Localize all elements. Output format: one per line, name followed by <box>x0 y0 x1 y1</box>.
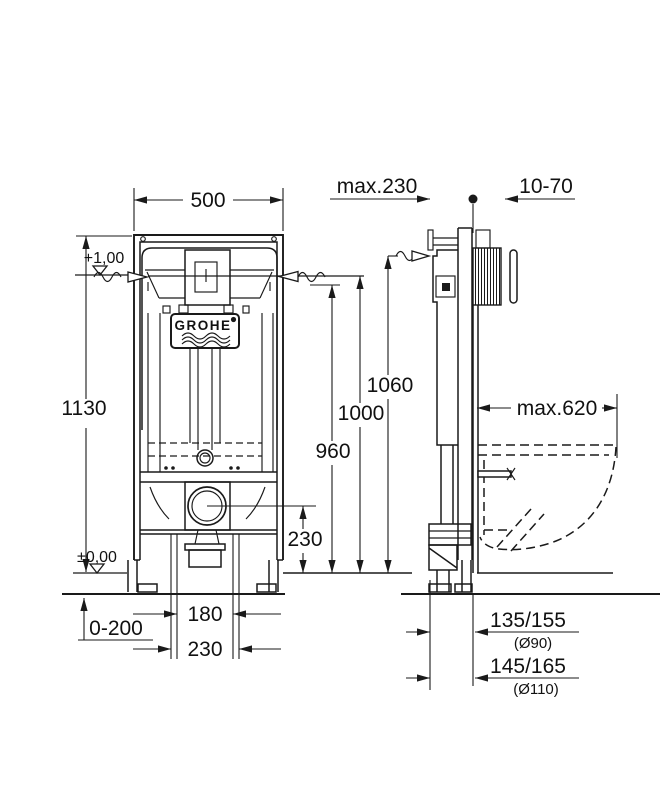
level-mark-icon <box>90 564 104 573</box>
dim-pipe-spacing-label: 230 <box>187 638 222 661</box>
frame-screw-icon <box>272 237 277 242</box>
wall-bracket <box>428 230 433 250</box>
dim-fixing-spacing-label: 180 <box>187 603 222 626</box>
dim-1060-label: 1060 <box>367 374 414 397</box>
dim-plate-adjust-label: 10-70 <box>519 175 573 198</box>
plate-connection-arrow-icon <box>396 251 429 261</box>
fixing-stud <box>478 471 511 477</box>
actuation-plate <box>510 250 517 303</box>
level-top-label: +1,00 <box>84 250 125 267</box>
cistern: GROHE <box>142 248 277 567</box>
wc-bowl-outline <box>478 445 616 551</box>
grohe-logo: GROHE <box>171 314 239 348</box>
wall-reference-dot-icon <box>469 195 478 204</box>
dim-drain-110-label: 145/165 <box>490 655 566 678</box>
dim-outlet-height-label: 230 <box>287 528 322 551</box>
adjustable-feet <box>128 560 278 592</box>
flush-bend-connector <box>197 450 213 466</box>
dim-width-label: 500 <box>190 189 225 212</box>
brand-text: GROHE <box>174 318 231 333</box>
mounting-frame <box>128 235 283 592</box>
registered-mark-icon <box>231 317 236 322</box>
installation-drawing: GROHE <box>0 0 667 800</box>
dim-drain-110-dia-label: (Ø110) <box>513 681 559 698</box>
flush-valve-unit <box>185 250 230 305</box>
dim-bowl-depth-label: max.620 <box>517 397 598 420</box>
dimensions: 500 1130 +1,00 ±0,00 230 9 <box>61 175 617 698</box>
inspection-shaft <box>473 248 501 305</box>
dim-drain-90-dia-label: (Ø90) <box>514 635 552 652</box>
dim-floor-buildup-label: 0-200 <box>89 617 143 640</box>
front-view: GROHE <box>128 235 283 659</box>
dim-drain-90-label: 135/155 <box>490 609 566 632</box>
dim-960-label: 960 <box>315 440 350 463</box>
dim-height-label: 1130 <box>61 397 106 420</box>
dim-1000-label: 1000 <box>338 402 385 425</box>
drain-elbow <box>429 524 471 545</box>
frame-screw-icon <box>141 237 146 242</box>
dim-frame-depth-label: max.230 <box>337 175 418 198</box>
cistern-side-profile <box>433 250 458 445</box>
